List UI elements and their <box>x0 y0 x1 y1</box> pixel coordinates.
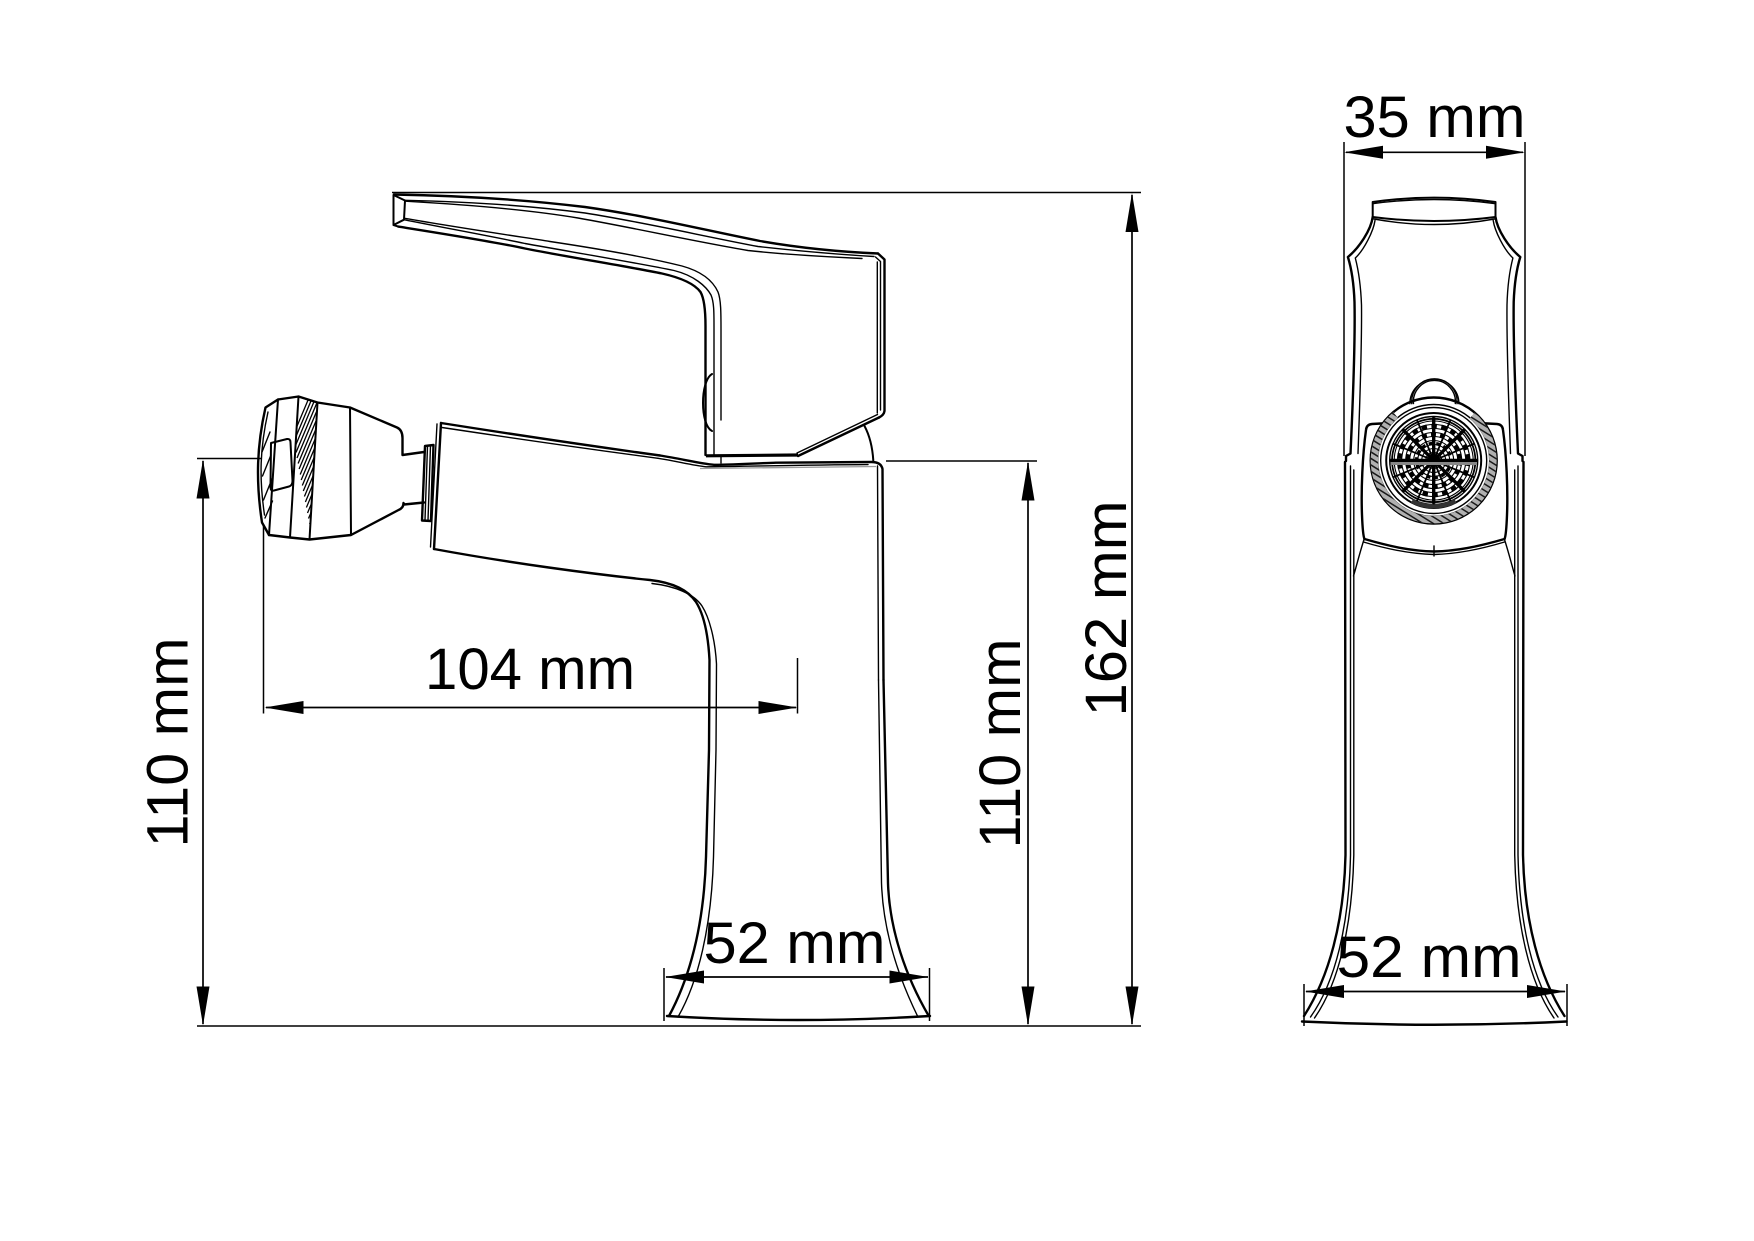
svg-text:52 mm: 52 mm <box>1337 925 1522 990</box>
svg-text:104 mm: 104 mm <box>425 637 635 702</box>
svg-text:35 mm: 35 mm <box>1344 85 1526 150</box>
svg-text:52 mm: 52 mm <box>704 911 886 976</box>
svg-text:110 mm: 110 mm <box>136 638 201 848</box>
svg-text:162 mm: 162 mm <box>1074 501 1139 717</box>
svg-text:110 mm: 110 mm <box>968 639 1033 849</box>
